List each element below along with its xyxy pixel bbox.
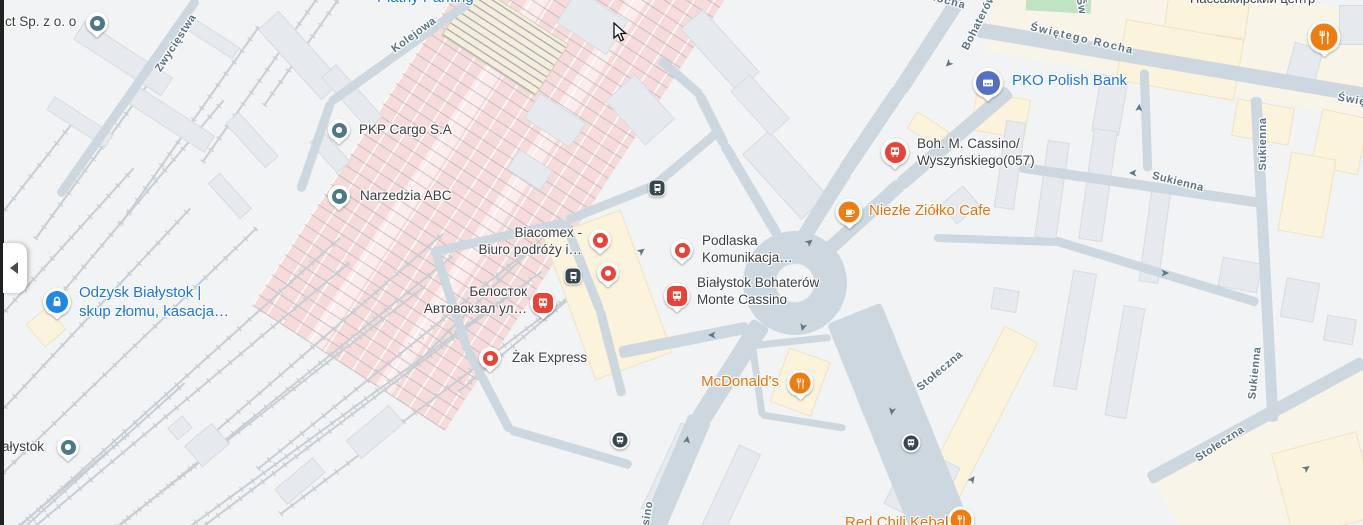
teal-business-marker-icon <box>332 189 347 204</box>
poi-label[interactable]: Biacomex -Biuro podróży i… <box>478 224 582 258</box>
building <box>1339 5 1363 45</box>
red-pin-marker-icon <box>593 233 608 248</box>
marker-dot <box>336 127 342 133</box>
poi-label-line: ałystok <box>2 438 44 455</box>
marker-dot <box>65 444 71 450</box>
one-way-arrow-icon: ➤ <box>941 56 955 70</box>
bank-marker[interactable] <box>973 68 1003 98</box>
one-way-arrow-icon: ➤ <box>707 329 716 340</box>
bus-stop-icon-icon <box>903 435 919 451</box>
marker-dot <box>597 237 603 243</box>
one-way-arrow-icon: ➤ <box>966 473 980 487</box>
poi-label[interactable]: PKO Polish Bank <box>1012 72 1127 91</box>
poi-label[interactable]: Red Chili Kebab <box>845 514 953 525</box>
one-way-arrow-icon: ➤ <box>1128 167 1137 178</box>
restaurant-marker[interactable] <box>787 370 814 397</box>
poi-label-line: Пассажирский центр <box>1190 0 1315 8</box>
marker-dot <box>605 270 611 276</box>
restaurant-marker[interactable] <box>1308 21 1341 54</box>
street-label: Stołeczna <box>915 348 966 393</box>
one-way-arrow-icon: ➤ <box>1134 103 1146 113</box>
poi-label-line: Biacomex - <box>478 224 582 241</box>
building <box>184 423 230 468</box>
marker-dot <box>94 20 100 26</box>
poi-label-line: Podlaska <box>702 232 793 249</box>
bus-station-marker[interactable] <box>664 283 690 309</box>
teal-business-marker[interactable] <box>86 12 108 34</box>
restaurant-marker-icon <box>951 510 972 525</box>
building <box>730 74 789 136</box>
bus-stop-icon[interactable] <box>611 431 630 450</box>
poi-label-line: PKP Cargo S.A <box>359 121 452 138</box>
poi-label-line: Red Chili Kebab <box>845 514 953 525</box>
building <box>225 112 279 169</box>
train-station-icon-glyph <box>651 182 663 194</box>
teal-business-marker[interactable] <box>328 185 350 207</box>
poi-label-line: Płatny Parking <box>377 0 474 8</box>
building <box>167 415 193 440</box>
street-label: Św <box>1074 0 1089 15</box>
building <box>1104 305 1145 419</box>
poi-label-line: McDonald's <box>701 373 779 392</box>
building <box>208 173 252 219</box>
red-pin-marker[interactable] <box>589 229 611 251</box>
red-pin-marker[interactable] <box>597 262 619 284</box>
train-station-icon-icon <box>565 268 582 285</box>
street-label: Sukienna <box>1257 118 1269 171</box>
poi-label[interactable]: Narzedzia ABC <box>360 187 452 204</box>
poi-label[interactable]: Пассажирский центр <box>1190 0 1315 8</box>
poi-label-line: ct Sp. z o. o <box>5 13 76 30</box>
building <box>1277 152 1336 239</box>
poi-label-line: Narzedzia ABC <box>360 187 452 204</box>
red-pin-marker[interactable] <box>479 347 501 369</box>
poi-label[interactable]: ct Sp. z o. o <box>5 13 76 30</box>
road <box>893 0 965 95</box>
panel-collapse-handle[interactable] <box>3 243 27 293</box>
poi-label[interactable]: Białystok BohaterówMonte Cassino <box>697 274 819 308</box>
poi-label[interactable]: Odzysk Białystok |skup złomu, kasacja… <box>79 284 229 321</box>
poi-label[interactable]: БелостокАвтовокзал ул… <box>424 283 527 317</box>
bus-stop-icon-glyph <box>906 438 917 449</box>
red-pin-marker-icon <box>483 351 498 366</box>
one-way-arrow-icon: ➤ <box>1160 269 1169 280</box>
restaurant-marker-glyph <box>1315 28 1333 46</box>
poi-label[interactable]: Płatny Parking <box>377 0 474 8</box>
one-way-arrow-icon: ➤ <box>682 435 694 446</box>
poi-label-line: skup złomu, kasacja… <box>79 303 229 322</box>
poi-label-line: Odzysk Białystok | <box>79 284 229 303</box>
bus-stop-red-marker[interactable] <box>881 138 909 166</box>
bus-station-marker-icon <box>533 293 553 313</box>
building <box>1323 315 1357 346</box>
street-label: Sukienna <box>1246 346 1263 400</box>
one-way-arrow-icon: ➤ <box>885 406 897 417</box>
marker-dot <box>679 247 685 253</box>
poi-label-line: Niezłe Ziółko Cafe <box>869 202 991 221</box>
restaurant-marker-glyph <box>954 513 968 525</box>
train-station-icon-glyph <box>567 270 579 282</box>
poi-label[interactable]: Boh. M. Cassino/Wyszyńskiego(057) <box>917 135 1035 169</box>
building <box>1280 277 1320 322</box>
bank-marker-glyph <box>980 75 996 91</box>
mouse-cursor-icon <box>613 22 628 48</box>
teal-business-marker-icon <box>90 16 105 31</box>
scrapyard-marker-glyph <box>50 295 64 309</box>
bank-marker-icon <box>976 71 1000 95</box>
restaurant-marker-icon <box>790 373 811 394</box>
cafe-marker-glyph <box>842 205 856 219</box>
poi-label[interactable]: PKP Cargo S.A <box>359 121 452 138</box>
cafe-marker-icon <box>839 202 860 223</box>
bus-stop-red-marker-icon <box>885 142 906 163</box>
marker-dot <box>336 193 342 199</box>
train-station-icon[interactable] <box>565 268 582 285</box>
teal-business-marker[interactable] <box>57 436 79 458</box>
poi-label-line: PKO Polish Bank <box>1012 72 1127 91</box>
building <box>990 287 1019 313</box>
poi-label-line: Monte Cassino <box>697 291 819 308</box>
poi-label-line: Komunikacja… <box>702 249 793 266</box>
teal-business-marker-icon <box>332 123 347 138</box>
scrapyard-marker-icon <box>46 291 68 313</box>
bus-station-marker-glyph <box>670 289 684 303</box>
poi-label-line: Автовокзал ул… <box>424 300 527 317</box>
restaurant-marker-icon <box>1311 24 1338 51</box>
poi-label[interactable]: Niezłe Ziółko Cafe <box>869 202 991 221</box>
teal-business-marker[interactable] <box>328 119 350 141</box>
red-pin-marker-icon <box>601 266 616 281</box>
poi-label-line: Białystok Bohaterów <box>697 274 819 291</box>
bus-station-marker-icon <box>667 286 687 306</box>
bus-stop-red-marker-glyph <box>888 145 902 159</box>
poi-label[interactable]: PodlaskaKomunikacja… <box>702 232 793 266</box>
bus-stop-icon[interactable] <box>902 434 921 453</box>
bus-stop-icon-glyph <box>615 435 626 446</box>
marker-dot <box>487 355 493 361</box>
poi-label-line: Белосток <box>424 283 527 300</box>
teal-business-marker-icon <box>61 440 76 455</box>
poi-label-line: Żak Express <box>512 349 587 366</box>
scrapyard-marker[interactable] <box>43 288 71 316</box>
poi-label[interactable]: ałystok <box>2 438 44 455</box>
restaurant-marker-glyph <box>793 376 807 390</box>
restaurant-marker[interactable] <box>948 507 975 525</box>
red-pin-marker[interactable] <box>671 239 693 261</box>
bus-station-marker[interactable] <box>530 290 556 316</box>
poi-label-line: Boh. M. Cassino/ <box>917 135 1035 152</box>
map-canvas[interactable]: ZwycięstwaKolejowaŚwiętego RochaRochaBoh… <box>0 0 1363 525</box>
train-station-icon-icon <box>649 180 666 197</box>
poi-label[interactable]: Żak Express <box>512 349 587 366</box>
poi-label-line: Biuro podróży i… <box>478 241 582 258</box>
chevron-left-icon <box>10 262 18 274</box>
cafe-marker[interactable] <box>836 199 863 226</box>
poi-label[interactable]: McDonald's <box>701 373 779 392</box>
bus-station-marker-glyph <box>536 296 550 310</box>
red-pin-marker-icon <box>675 243 690 258</box>
bus-stop-icon-icon <box>612 432 628 448</box>
building <box>699 444 761 525</box>
building <box>1034 140 1069 240</box>
building <box>1053 270 1097 390</box>
train-station-icon[interactable] <box>649 180 666 197</box>
poi-label-line: Wyszyńskiego(057) <box>917 152 1035 169</box>
